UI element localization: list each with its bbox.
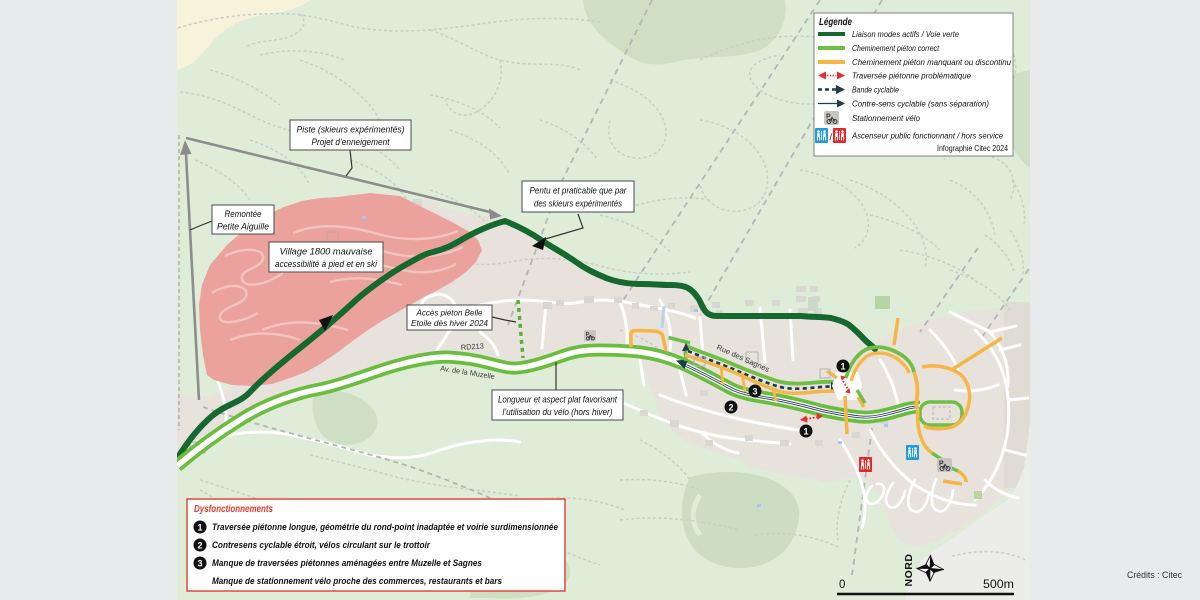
svg-text:0: 0 xyxy=(839,579,845,591)
svg-text:Crédits : Citec: Crédits : Citec xyxy=(1127,570,1182,580)
svg-text:Cheminement piéton correct: Cheminement piéton correct xyxy=(852,43,939,53)
svg-text:Pentu et praticable que par: Pentu et praticable que par xyxy=(530,186,628,196)
svg-text:Projet d’enneigement: Projet d’enneigement xyxy=(312,137,390,148)
svg-text:Longueur et aspect plat favori: Longueur et aspect plat favorisant xyxy=(498,395,617,405)
svg-text:500m: 500m xyxy=(983,579,1014,591)
svg-text:l’utilisation du vélo (hors hi: l’utilisation du vélo (hors hiver) xyxy=(503,407,613,417)
svg-text:Traversée piétonne longue, géo: Traversée piétonne longue, géométrie du … xyxy=(212,522,558,532)
svg-text:Petite Aiguille: Petite Aiguille xyxy=(217,222,269,233)
svg-text:1: 1 xyxy=(803,427,808,437)
svg-text:3: 3 xyxy=(752,387,757,397)
svg-text:3: 3 xyxy=(197,559,202,569)
svg-text:Village 1800 mauvaise: Village 1800 mauvaise xyxy=(280,247,373,257)
svg-text:Bande cyclable: Bande cyclable xyxy=(852,85,899,95)
svg-text:Légende: Légende xyxy=(819,17,852,28)
svg-text:Infographie Citec 2024: Infographie Citec 2024 xyxy=(937,144,1008,153)
svg-text:Piste (skieurs expérimentés): Piste (skieurs expérimentés) xyxy=(297,125,405,136)
svg-text:Remontée: Remontée xyxy=(225,209,262,220)
svg-text:Accès piéton Belle: Accès piéton Belle xyxy=(416,308,483,318)
svg-text:Contre-sens cyclable (sans sép: Contre-sens cyclable (sans séparation) xyxy=(852,99,989,109)
svg-text:Manque de stationnement vélo p: Manque de stationnement vélo proche des … xyxy=(212,576,502,586)
svg-text:1: 1 xyxy=(840,362,845,372)
svg-text:RD213: RD213 xyxy=(461,341,485,352)
svg-text:accessibilité à pied et en ski: accessibilité à pied et en ski xyxy=(275,259,378,269)
svg-text:Ascenseur public fonctionnant: Ascenseur public fonctionnant / hors ser… xyxy=(851,131,1003,141)
svg-text:Etoile dès hiver 2024: Etoile dès hiver 2024 xyxy=(411,318,488,328)
svg-text:Contresens cyclable étroit, vé: Contresens cyclable étroit, vélos circul… xyxy=(212,540,431,550)
svg-text:Cheminement piéton manquant ou: Cheminement piéton manquant ou discontin… xyxy=(852,57,1011,67)
svg-text:NORD: NORD xyxy=(903,554,915,587)
svg-text:Manque de traversées piétonnes: Manque de traversées piétonnes aménagées… xyxy=(212,558,482,568)
svg-text:1: 1 xyxy=(197,523,202,533)
svg-text:Liaison modes actifs / Voie ve: Liaison modes actifs / Voie verte xyxy=(852,29,959,39)
svg-text:des skieurs expérimentés: des skieurs expérimentés xyxy=(534,199,622,209)
svg-text:Dysfonctionnements: Dysfonctionnements xyxy=(194,504,273,515)
svg-text:Stationnement vélo: Stationnement vélo xyxy=(852,113,920,123)
svg-text:Traversée piétonne problématiq: Traversée piétonne problématique xyxy=(852,71,971,81)
svg-text:2: 2 xyxy=(197,541,202,551)
svg-text:2: 2 xyxy=(728,403,733,413)
